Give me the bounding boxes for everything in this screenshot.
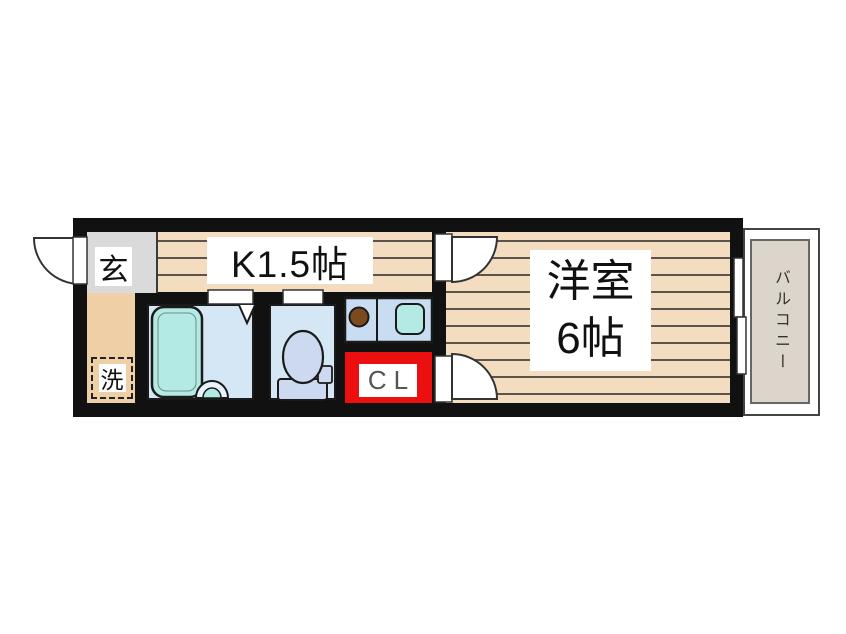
washer-pan: 洗 [91, 357, 133, 399]
closet-label: CL [361, 365, 415, 396]
entrance-label: 玄 [95, 247, 132, 286]
bathtub-icon [152, 307, 202, 397]
washer-label: 洗 [99, 364, 126, 392]
room-door-bottom-leaf-icon [435, 356, 452, 402]
toilet-bowl-icon [283, 331, 323, 383]
kitchen-label: K1.5帖 [207, 237, 373, 284]
sliding-window-pane1-icon [734, 258, 743, 317]
floorplan-canvas: バルコニー 玄 K [0, 0, 846, 634]
western-room-label: 洋室 6帖 [530, 250, 651, 371]
room-door-bottom-swing-icon [452, 354, 497, 399]
sliding-window-pane2-icon [737, 317, 746, 374]
kitchen-sink-icon [396, 304, 424, 334]
entrance-door-leaf-icon [73, 237, 87, 284]
toilet-doorway-icon [283, 290, 323, 304]
room-door-top-swing-icon [452, 237, 497, 282]
stove-burner-icon [350, 308, 369, 327]
western-room-name: 洋室 [547, 254, 635, 310]
western-room-size: 6帖 [556, 311, 624, 367]
folding-door-icon [239, 305, 255, 323]
bathroom-doorway-icon [208, 290, 253, 304]
closet-label-box: CL [359, 364, 417, 397]
fixtures-overlay [0, 0, 846, 634]
room-door-top-leaf-icon [435, 234, 452, 281]
